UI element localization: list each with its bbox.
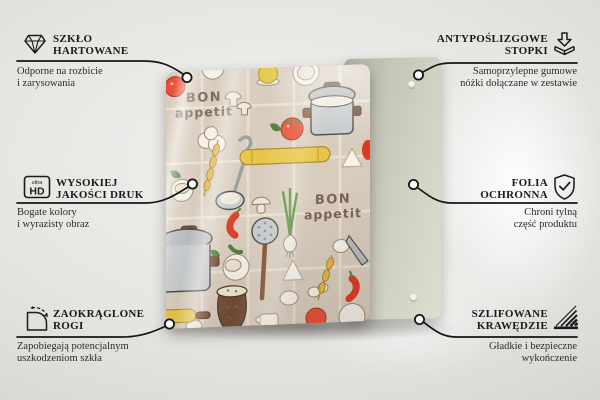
callout-protective-film-desc: Chroni tylną część produktu <box>514 207 577 230</box>
title-line: OCHRONNA <box>480 189 548 201</box>
desc-line: część produktu <box>514 219 577 231</box>
glass-reflection-overlay <box>166 64 370 329</box>
callout-tempered-glass-title: SZKŁO HARTOWANE <box>53 33 128 57</box>
product-infographic: BON appetit BON appetit <box>0 0 600 400</box>
title-line: ROGI <box>53 320 144 332</box>
shield-check-icon <box>551 173 578 201</box>
desc-line: i zarysowania <box>17 78 103 90</box>
title-line: STOPKI <box>437 45 548 57</box>
callout-anti-slip-feet-title: ANTYPOŚLIZGOWE STOPKI <box>437 33 548 57</box>
title-line: SZKŁO <box>53 33 128 45</box>
desc-line: Odporne na rozbicie <box>17 66 103 78</box>
ultra-hd-icon: ultra HD <box>23 175 51 199</box>
desc-line: Chroni tylną <box>514 207 577 219</box>
callout-polished-edges-icon-wrap <box>551 304 579 330</box>
callout-tempered-glass-icon-wrap <box>23 33 47 55</box>
desc-line: uszkodzeniom szkła <box>17 353 129 365</box>
desc-line: Zapobiegają potencjalnym <box>17 341 129 353</box>
adhesive-feet-icon <box>551 31 578 58</box>
desc-line: Samoprzylepne gumowe <box>460 66 577 78</box>
desc-line: Gładkie i bezpieczne <box>489 341 577 353</box>
desc-line: i wyrazisty obraz <box>17 219 89 231</box>
title-line: SZLIFOWANE <box>472 308 548 320</box>
callout-high-quality-print-desc: Bogate kolory i wyrazisty obraz <box>17 207 89 230</box>
anti-slip-foot-bottom <box>410 294 417 301</box>
callout-polished-edges-title: SZLIFOWANE KRAWĘDZIE <box>472 308 548 332</box>
callout-anti-slip-feet-icon-wrap <box>551 31 578 58</box>
anti-slip-foot-top <box>408 81 415 88</box>
callout-tempered-glass-desc: Odporne na rozbicie i zarysowania <box>17 66 103 89</box>
callout-high-quality-print-title: WYSOKIEJ JAKOŚCI DRUK <box>56 177 144 201</box>
callout-rounded-corners-title: ZAOKRĄGLONE ROGI <box>53 308 144 332</box>
title-line: KRAWĘDZIE <box>472 320 548 332</box>
callout-rounded-corners-icon-wrap <box>24 306 50 332</box>
hatched-edge-icon <box>551 304 579 330</box>
callout-anti-slip-feet-desc: Samoprzylepne gumowe nóżki dołączane w z… <box>460 66 577 89</box>
title-line: ANTYPOŚLIZGOWE <box>437 33 548 45</box>
callout-protective-film-title: FOLIA OCHRONNA <box>480 177 548 201</box>
title-line: JAKOŚCI DRUK <box>56 189 144 201</box>
callout-protective-film-icon-wrap <box>551 173 578 201</box>
title-line: FOLIA <box>480 177 548 189</box>
callout-polished-edges-desc: Gładkie i bezpieczne wykończenie <box>489 341 577 364</box>
desc-line: wykończenie <box>489 353 577 365</box>
callout-high-quality-print-icon-wrap: ultra HD <box>23 175 51 199</box>
hd-label: HD <box>29 186 45 198</box>
callout-rounded-corners-desc: Zapobiegają potencjalnym uszkodzeniom sz… <box>17 341 129 364</box>
title-line: ZAOKRĄGLONE <box>53 308 144 320</box>
rounded-corner-icon <box>24 306 50 332</box>
desc-line: Bogate kolory <box>17 207 89 219</box>
glass-board-front: BON appetit BON appetit <box>166 64 370 329</box>
diamond-icon <box>23 33 47 55</box>
title-line: WYSOKIEJ <box>56 177 144 189</box>
title-line: HARTOWANE <box>53 45 128 57</box>
desc-line: nóżki dołączane w zestawie <box>460 78 577 90</box>
